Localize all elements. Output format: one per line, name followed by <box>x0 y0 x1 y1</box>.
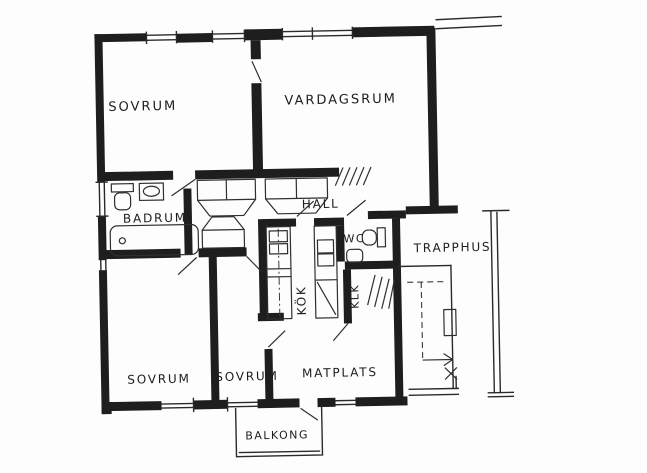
scanned-floor-plan-page: SOVRUM VARDAGSRUM BADRUM HALL WC TRAPPHU… <box>0 0 647 473</box>
window-icon <box>96 182 108 216</box>
window-icon <box>212 30 244 42</box>
floor-plan-canvas: SOVRUM VARDAGSRUM BADRUM HALL WC TRAPPHU… <box>0 0 647 473</box>
wardrobe-icon <box>202 216 245 248</box>
door-swing-icon <box>178 257 197 274</box>
stairs-icon <box>407 281 457 380</box>
room-label-sovrum-2: SOVRUM <box>127 372 191 387</box>
window-icon <box>146 32 176 44</box>
door-swing-icon <box>333 323 348 340</box>
door-swing-icon <box>301 408 318 420</box>
room-label-vardagsrum: VARDAGSRUM <box>284 92 397 109</box>
stove-icon <box>317 240 333 266</box>
room-label-matplats: MATPLATS <box>302 365 378 380</box>
door-swing-icon <box>171 179 195 195</box>
room-label-klk: KLK <box>348 284 361 309</box>
wardrobe-icon <box>197 179 256 216</box>
room-label-sovrum-1: SOVRUM <box>108 99 177 115</box>
window-icon <box>161 398 193 412</box>
room-label-sovrum-3: SOVRUM <box>215 369 279 384</box>
window-icon <box>227 397 257 411</box>
room-label-wc: WC <box>343 232 365 245</box>
room-label-trapphus: TRAPPHUS <box>413 240 492 256</box>
window-icon <box>282 27 352 39</box>
room-label-balkong: BALKONG <box>245 428 309 442</box>
room-label-kok: KÖK <box>292 285 309 315</box>
floor-plan: SOVRUM VARDAGSRUM BADRUM HALL WC TRAPPHU… <box>0 0 647 473</box>
clothes-rail-icon <box>367 275 395 310</box>
room-label-badrum: BADRUM <box>123 211 187 226</box>
kitchen-counter-icon <box>314 226 338 318</box>
window-icon <box>335 400 355 404</box>
door-swing-icon <box>268 331 285 347</box>
coat-rack-icon <box>335 167 371 186</box>
toilet-icon <box>111 184 133 210</box>
door-swing-icon <box>347 200 366 215</box>
kitchen-counter-icon <box>266 227 292 319</box>
window-icon <box>101 260 106 270</box>
door-swing-icon <box>252 61 261 82</box>
sink-icon <box>347 249 363 262</box>
toilet-icon <box>362 228 385 247</box>
room-label-hall: HALL <box>302 197 340 212</box>
sink-icon <box>139 183 163 200</box>
